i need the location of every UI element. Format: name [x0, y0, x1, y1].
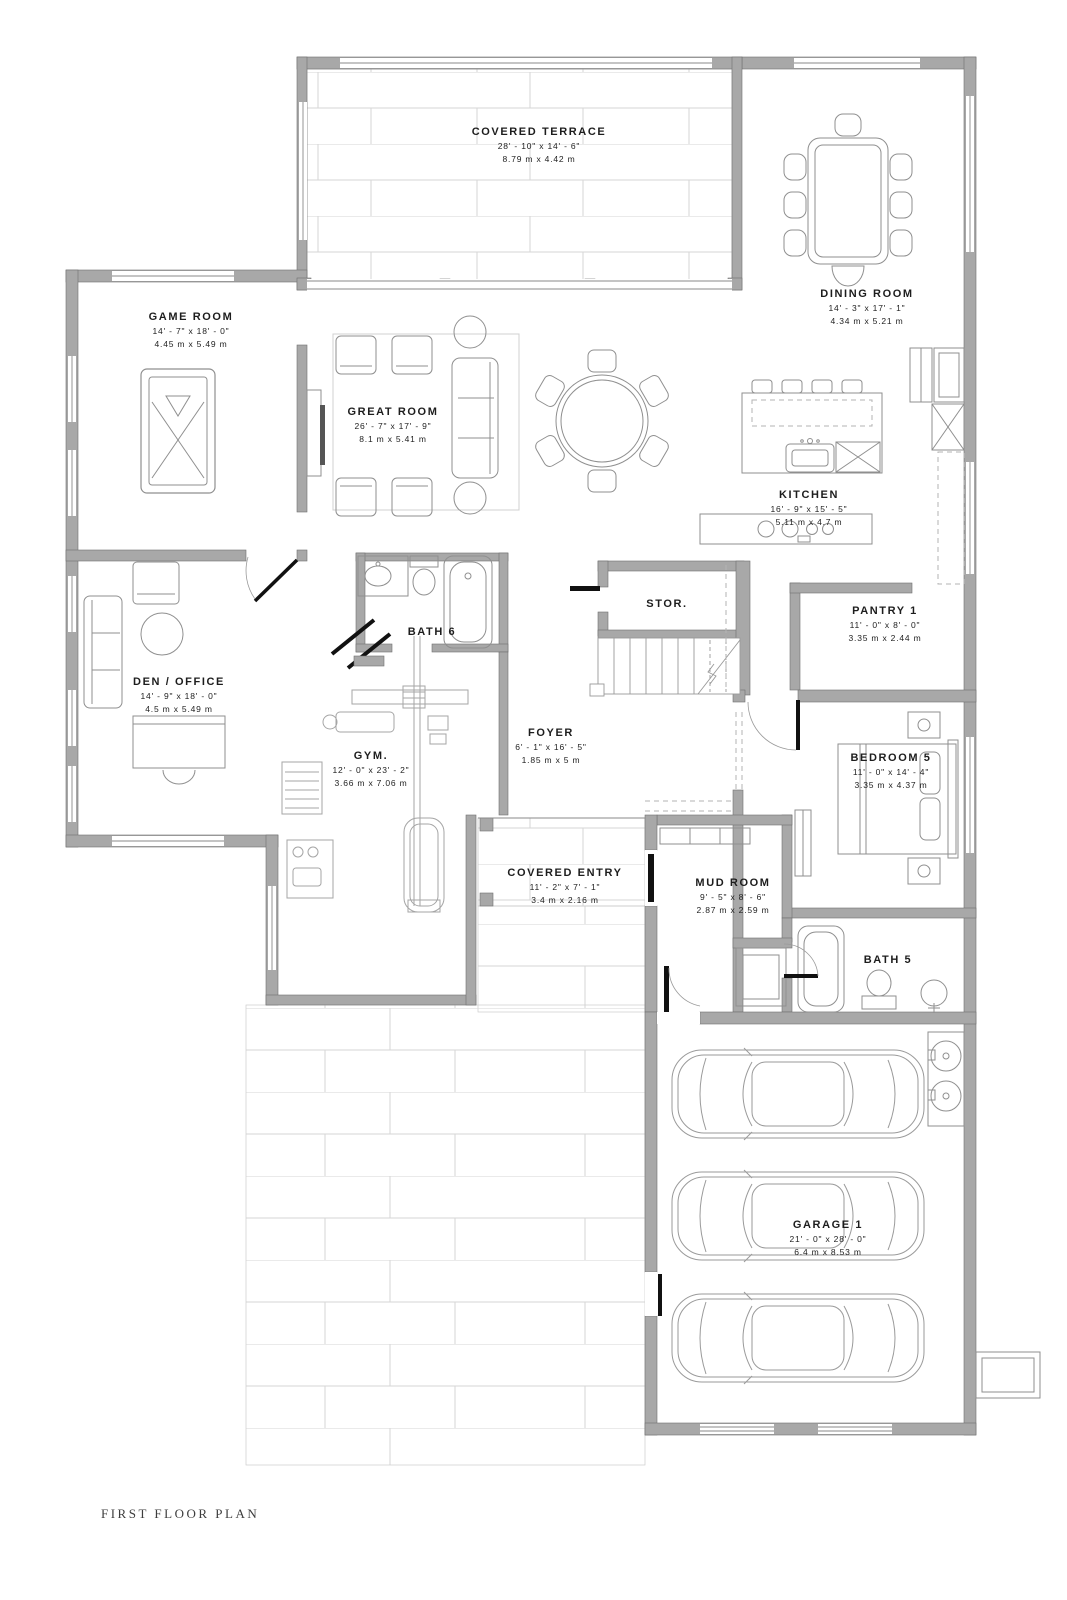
- room-dim-imperial: 26' - 7" x 17' - 9": [348, 421, 439, 431]
- driveway-paving: [246, 906, 645, 1465]
- room-name: PANTRY 1: [849, 605, 922, 617]
- room-dim-imperial: 21' - 0" x 28' - 0": [790, 1234, 867, 1244]
- room-label-foyer: FOYER 6' - 1" x 16' - 5" 1.85 m x 5 m: [515, 727, 586, 765]
- bed: [795, 712, 958, 884]
- room-dim-imperial: 14' - 3" x 17' - 1": [820, 303, 913, 313]
- room-dim-metric: 5.11 m x 4.7 m: [771, 517, 848, 527]
- room-label-bath-6: BATH 6: [408, 626, 457, 638]
- room-label-bath-5: BATH 5: [864, 954, 913, 966]
- room-dim-imperial: 14' - 9" x 18' - 0": [133, 691, 225, 701]
- room-dim-metric: 3.35 m x 2.44 m: [849, 633, 922, 643]
- water-heaters: [928, 1032, 964, 1126]
- room-dim-metric: 4.45 m x 5.49 m: [149, 339, 234, 349]
- kitchen-tall-cabinets: [910, 348, 964, 450]
- room-dim-imperial: 16' - 9" x 15' - 5": [771, 504, 848, 514]
- stairs: [590, 638, 740, 696]
- room-dim-metric: 3.66 m x 7.06 m: [333, 778, 410, 788]
- room-label-garage-1: GARAGE 1 21' - 0" x 28' - 0" 6.4 m x 8.5…: [790, 1219, 867, 1257]
- floor-plan-canvas: COVERED TERRACE 28' - 10" x 14' - 6" 8.7…: [0, 0, 1067, 1600]
- room-dim-metric: 3.4 m x 2.16 m: [507, 895, 622, 905]
- exterior-pad: [976, 1352, 1040, 1398]
- room-label-game-room: GAME ROOM 14' - 7" x 18' - 0" 4.45 m x 5…: [149, 311, 234, 349]
- room-dim-metric: 1.85 m x 5 m: [515, 755, 586, 765]
- room-dim-imperial: 28' - 10" x 14' - 6": [472, 141, 607, 151]
- room-dim-imperial: 14' - 7" x 18' - 0": [149, 326, 234, 336]
- room-name: GYM.: [333, 750, 410, 762]
- room-name: BATH 6: [408, 626, 457, 638]
- room-label-kitchen: KITCHEN 16' - 9" x 15' - 5" 5.11 m x 4.7…: [771, 489, 848, 527]
- room-name: COVERED ENTRY: [507, 867, 622, 879]
- room-label-great-room: GREAT ROOM 26' - 7" x 17' - 9" 8.1 m x 5…: [348, 406, 439, 444]
- room-dim-metric: 2.87 m x 2.59 m: [695, 905, 770, 915]
- room-label-mud-room: MUD ROOM 9' - 5" x 8' - 6" 2.87 m x 2.59…: [695, 877, 770, 915]
- room-dim-metric: 8.79 m x 4.42 m: [472, 154, 607, 164]
- room-label-covered-entry: COVERED ENTRY 11' - 2" x 7' - 1" 3.4 m x…: [507, 867, 622, 905]
- room-name: DINING ROOM: [820, 288, 913, 300]
- room-label-dining-room: DINING ROOM 14' - 3" x 17' - 1" 4.34 m x…: [820, 288, 913, 326]
- room-name: DEN / OFFICE: [133, 676, 225, 688]
- room-dim-metric: 3.35 m x 4.37 m: [850, 780, 931, 790]
- room-name: COVERED TERRACE: [472, 126, 607, 138]
- room-dim-imperial: 9' - 5" x 8' - 6": [695, 892, 770, 902]
- room-label-gym: GYM. 12' - 0" x 23' - 2" 3.66 m x 7.06 m: [333, 750, 410, 788]
- dining-table: [784, 114, 912, 286]
- room-dim-metric: 4.5 m x 5.49 m: [133, 704, 225, 714]
- room-dim-imperial: 6' - 1" x 16' - 5": [515, 742, 586, 752]
- room-dim-metric: 8.1 m x 5.41 m: [348, 434, 439, 444]
- room-dim-imperial: 11' - 0" x 14' - 4": [850, 767, 931, 777]
- room-name: FOYER: [515, 727, 586, 739]
- room-name: GREAT ROOM: [348, 406, 439, 418]
- room-name: BEDROOM 5: [850, 752, 931, 764]
- terrace-paving: [307, 69, 732, 283]
- bath-5-fixtures: [798, 926, 947, 1013]
- floor-plan-drawing: [0, 0, 1067, 1600]
- room-dim-imperial: 11' - 0" x 8' - 0": [849, 620, 922, 630]
- pool-table: [141, 369, 215, 493]
- room-dim-imperial: 12' - 0" x 23' - 2": [333, 765, 410, 775]
- plan-title: FIRST FLOOR PLAN: [101, 1506, 259, 1522]
- room-label-den-office: DEN / OFFICE 14' - 9" x 18' - 0" 4.5 m x…: [133, 676, 225, 714]
- room-name: GAME ROOM: [149, 311, 234, 323]
- garage-cars: [672, 1048, 924, 1384]
- room-name: GARAGE 1: [790, 1219, 867, 1231]
- room-name: STOR.: [646, 598, 687, 610]
- room-dim-imperial: 11' - 2" x 7' - 1": [507, 882, 622, 892]
- room-label-pantry-1: PANTRY 1 11' - 0" x 8' - 0" 3.35 m x 2.4…: [849, 605, 922, 643]
- room-label-bedroom-5: BEDROOM 5 11' - 0" x 14' - 4" 3.35 m x 4…: [850, 752, 931, 790]
- breakfast-table: [533, 350, 670, 492]
- room-dim-metric: 4.34 m x 5.21 m: [820, 316, 913, 326]
- den-office-furniture: [84, 562, 225, 784]
- mud-room-fixtures: [660, 828, 786, 1006]
- room-label-storage: STOR.: [646, 598, 687, 610]
- room-label-covered-terrace: COVERED TERRACE 28' - 10" x 14' - 6" 8.7…: [472, 126, 607, 164]
- room-name: KITCHEN: [771, 489, 848, 501]
- room-name: BATH 5: [864, 954, 913, 966]
- room-dim-metric: 6.4 m x 8.53 m: [790, 1247, 867, 1257]
- room-name: MUD ROOM: [695, 877, 770, 889]
